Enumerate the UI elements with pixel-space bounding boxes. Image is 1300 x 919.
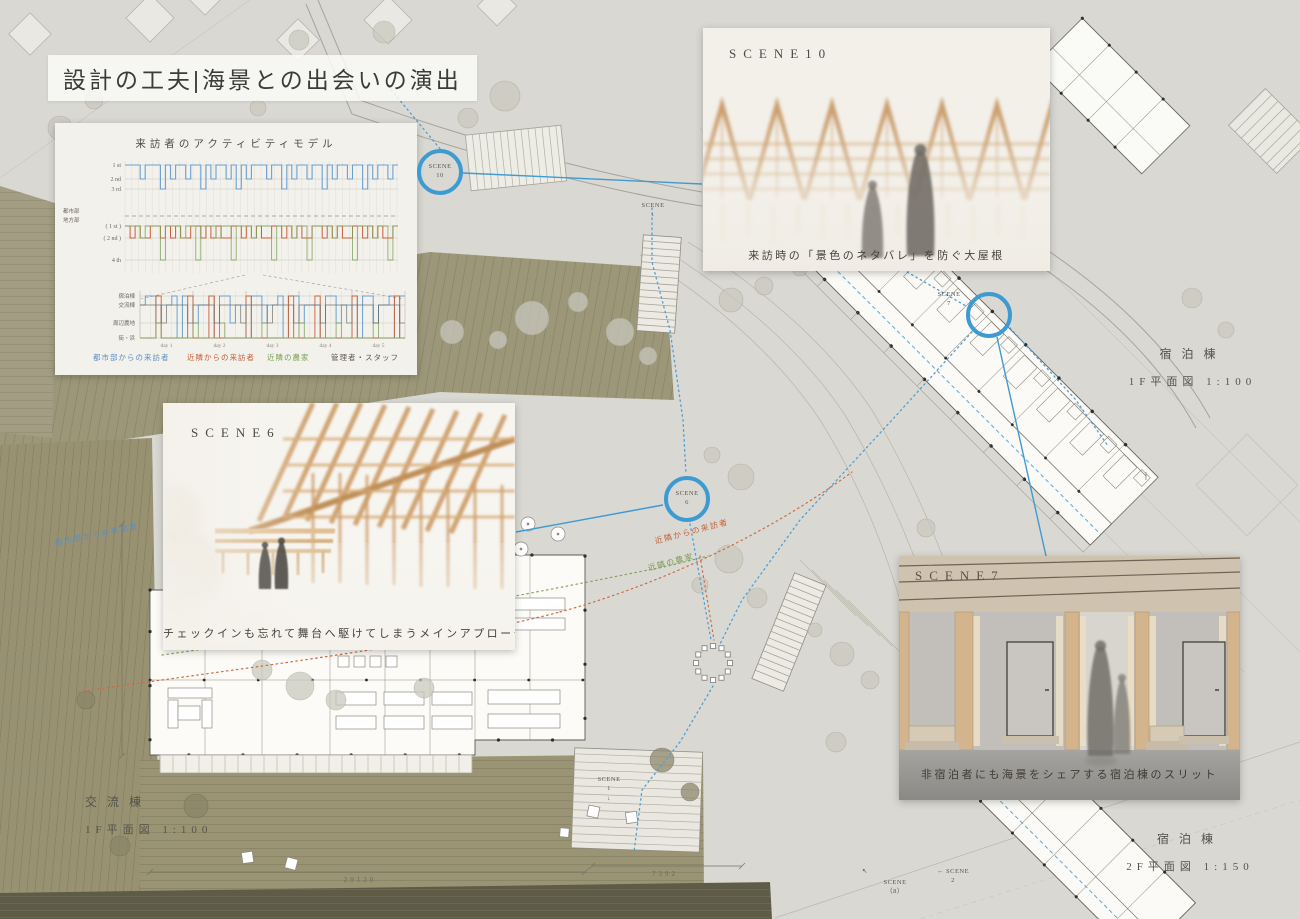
- scene10-marker-word: SCENE: [428, 163, 451, 172]
- ylabel-urban-zone: 都市部: [63, 207, 80, 215]
- scene7-art: [899, 556, 1240, 800]
- scene10-label: SCENE10: [729, 46, 832, 62]
- ylabel-1st-b: ( 1 st ): [106, 223, 122, 230]
- xlabel-day4: day 4: [319, 343, 331, 349]
- xlabel-day3: day 3: [266, 343, 278, 349]
- presentation-board: { "board": { "title": "設計の工夫|海景との出会いの演出"…: [0, 0, 1300, 919]
- legend-farmer: 近隣の農家: [267, 352, 310, 363]
- xlabel-day2: day 2: [213, 343, 225, 349]
- ylabel-farmland: 周辺農地: [113, 319, 136, 327]
- scene-top-marker: SCENE ↓: [630, 201, 676, 220]
- scene7-marker-label: SCENE 7: [932, 290, 966, 309]
- scene7-caption: 非宿泊者にも海景をシェアする宿泊棟のスリット: [899, 766, 1240, 782]
- scene6-caption: チェックインも忘れて舞台へ駆けてしまうメインアプローチ: [163, 625, 515, 641]
- engawa-terrace: [160, 755, 472, 773]
- ylabel-2nd: 2 nd: [111, 177, 122, 183]
- parking: [1229, 89, 1300, 174]
- lodging-1f-title: 宿泊棟 1F平面図 1:100: [1095, 345, 1290, 389]
- series-staff-lower: [140, 305, 405, 323]
- ylabel-rural-zone: 地方部: [63, 216, 80, 224]
- scene6-label: SCENE6: [191, 425, 281, 441]
- scene6-marker-circle: SCENE 6: [664, 476, 710, 522]
- series-farmer-lower: [140, 323, 405, 338]
- scene2-marker: ← SCENE 2: [926, 867, 980, 886]
- scene10-art: [703, 28, 1050, 271]
- scene1-marker: SCENE 1 ↓: [586, 775, 632, 803]
- lodging-2f-title: 宿泊棟 2F平面図 1:150: [1090, 830, 1290, 874]
- activity-model-panel: 来訪者のアクティビティモデル 1 st 2 nd 3 rd 都市部 地方部 ( …: [55, 123, 417, 375]
- scene7-photo: SCENE7 非宿泊者にも海景をシェアする宿泊棟のスリット: [899, 556, 1240, 800]
- scene10-marker-circle: SCENE 10: [417, 149, 463, 195]
- activity-chart: 1 st 2 nd 3 rd 都市部 地方部 ( 1 st ) ( 2 nd )…: [55, 123, 417, 375]
- arrow-down-icon: ↓: [651, 211, 655, 218]
- ylabel-4th: 4 th: [112, 258, 121, 264]
- dimension-29120: 29120: [300, 876, 420, 884]
- scene7-label: SCENE7: [915, 568, 1005, 584]
- scene6-marker-word: SCENE: [675, 490, 698, 499]
- scene7-marker-circle: [966, 292, 1012, 338]
- arrow-left-icon: ←: [937, 868, 944, 875]
- legend-urban: 都市部からの来訪者: [93, 352, 170, 363]
- ylabel-town-beach: 街・浜: [118, 334, 135, 342]
- scene6-photo: SCENE6 チェックインも忘れて舞台へ駆けてしまうメインアプローチ: [163, 403, 515, 650]
- page-title: 設計の工夫|海景との出会いの演出: [48, 55, 477, 101]
- legend-staff: 管理者・スタッフ: [331, 352, 399, 363]
- scene6-marker-number: 6: [685, 499, 689, 508]
- stairs-upper: [637, 235, 682, 333]
- ylabel-3rd: 3 rd: [112, 187, 122, 193]
- ylabel-exchange: 交流棟: [118, 301, 135, 309]
- arrow-nw-icon: ↖: [862, 867, 868, 876]
- plaza-ring: [694, 644, 733, 683]
- left-terrace-steps: [2, 600, 56, 782]
- xlabel-day1: day 1: [160, 343, 172, 349]
- series-urban-upper: [125, 165, 398, 189]
- exchange-1f-title: 交流棟 1F平面図 1:100: [85, 793, 305, 837]
- scene10-photo: SCENE10 来訪時の「景色のネタバレ」を防ぐ大屋根: [703, 28, 1050, 271]
- scene10-caption: 来訪時の「景色のネタバレ」を防ぐ大屋根: [703, 247, 1050, 263]
- ylabel-1st: 1 st: [112, 163, 121, 169]
- pier: [465, 125, 566, 191]
- ylabel-lodging: 宿泊棟: [118, 292, 135, 300]
- dimension-7392: 7392: [625, 870, 705, 878]
- legend-neighbor: 近隣からの来訪者: [187, 352, 255, 363]
- scene10-marker-number: 10: [436, 172, 444, 181]
- scene8-marker: SCENE （8）: [872, 878, 918, 897]
- xlabel-day5: day 5: [372, 343, 384, 349]
- storage-building-plan: [1034, 18, 1190, 174]
- ylabel-2nd-b: ( 2 nd ): [104, 235, 122, 242]
- arrow-down-icon: ↓: [607, 795, 611, 802]
